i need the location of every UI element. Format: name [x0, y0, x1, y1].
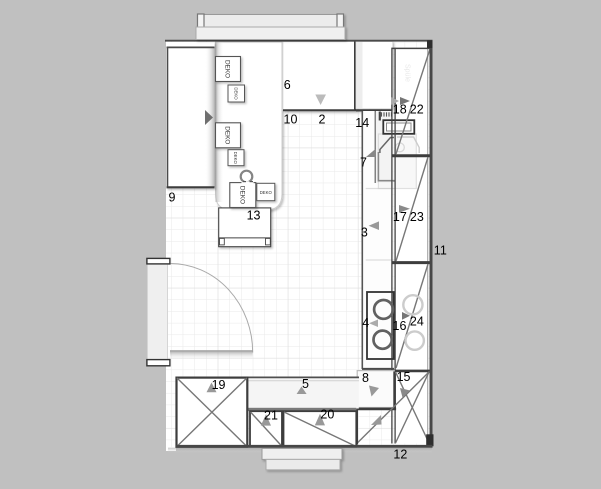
svg-text:22: 22 [410, 103, 424, 117]
svg-text:DEKO: DEKO [260, 190, 273, 195]
svg-text:7: 7 [360, 156, 367, 170]
svg-text:4: 4 [362, 316, 369, 330]
svg-text:12: 12 [393, 447, 407, 461]
svg-text:2: 2 [319, 112, 326, 126]
svg-text:DEKO: DEKO [224, 126, 231, 144]
svg-text:11: 11 [434, 243, 447, 257]
svg-text:DEKO: DEKO [224, 60, 231, 78]
svg-text:20: 20 [320, 408, 334, 422]
svg-text:15: 15 [397, 370, 411, 384]
svg-text:10: 10 [284, 112, 298, 126]
svg-text:8: 8 [362, 371, 369, 385]
svg-text:14: 14 [355, 116, 369, 130]
svg-text:23: 23 [410, 210, 424, 224]
svg-text:Spüle: Spüle [404, 64, 411, 82]
svg-text:9: 9 [169, 191, 176, 205]
svg-text:3: 3 [361, 226, 368, 240]
svg-text:DEKO: DEKO [233, 152, 238, 165]
svg-text:6: 6 [284, 78, 291, 92]
svg-text:21: 21 [264, 409, 278, 423]
svg-text:5: 5 [302, 377, 309, 391]
svg-text:DEKO: DEKO [238, 186, 245, 204]
svg-text:13: 13 [247, 208, 261, 222]
svg-text:24: 24 [410, 315, 424, 329]
svg-text:17: 17 [393, 210, 407, 224]
svg-text:DEKO: DEKO [233, 87, 238, 100]
svg-text:18: 18 [393, 103, 407, 117]
svg-text:16: 16 [393, 319, 407, 333]
svg-text:19: 19 [212, 378, 226, 392]
